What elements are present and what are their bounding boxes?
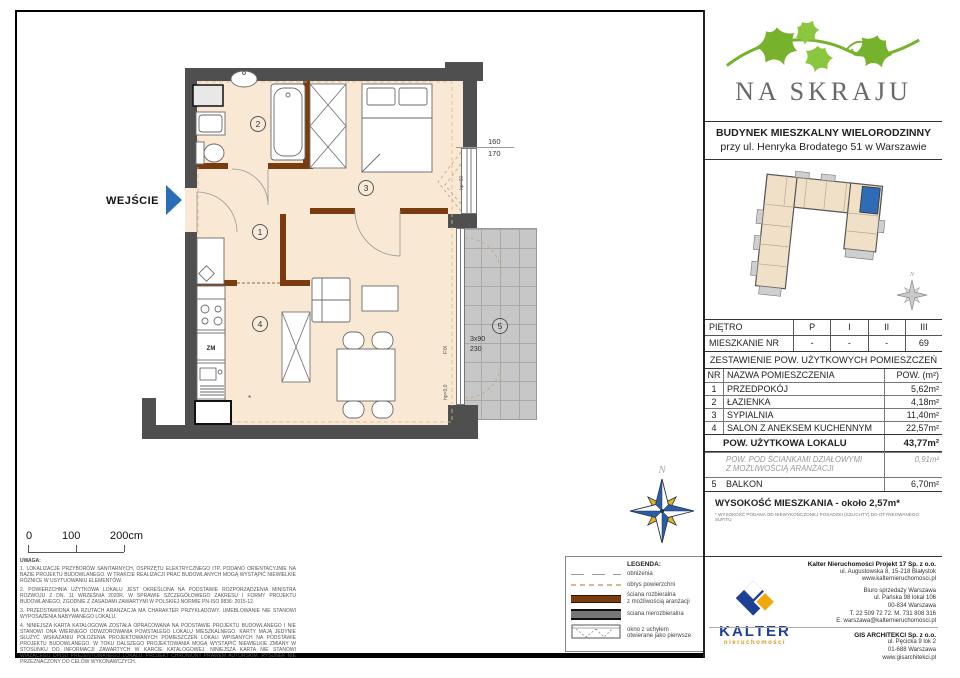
col-area: POW. (m²): [884, 369, 942, 382]
fix-window-label: FIX: [443, 345, 449, 354]
sales-office-title: Biuro sprzedaży Warszawa: [801, 588, 936, 596]
floor-row: PIĘTRO P I II III: [705, 320, 942, 335]
area-table-header: NR NAZWA POMIESZCZENIA POW. (m²): [705, 369, 942, 382]
hp-window-label: hp=60: [459, 176, 465, 190]
balcony-row: 5 BALKON 6,70m²: [705, 478, 942, 492]
scale-line: [28, 552, 124, 553]
col-nr: NR: [705, 369, 723, 382]
unit-cell: -: [830, 336, 867, 351]
architect-website[interactable]: www.gisarchitekci.pl: [801, 655, 936, 663]
legend-item: ściana rozbieralna z możliwością aranżac…: [571, 592, 702, 605]
demountable-wall-symbol: [571, 595, 621, 603]
area-table: NR NAZWA POMIESZCZENIA POW. (m²) 1 PRZED…: [705, 369, 942, 435]
note-item: 1. LOKALIZACJE PRZYBORÓW SANITARNYCH, OS…: [20, 566, 296, 584]
floor-row-label: PIĘTRO: [705, 320, 793, 335]
architect-city: 01-688 Warszawa: [801, 647, 936, 655]
floor-cell: I: [830, 320, 867, 335]
unit-cell: -: [868, 336, 905, 351]
kalter-diamond-icon: [732, 578, 778, 622]
toilet: [196, 142, 224, 164]
balcony-dim-2: 230: [470, 346, 482, 353]
room-area: 22,57m²: [884, 422, 942, 434]
area-table-title: ZESTAWIENIE POW. UŻYTKOWYCH POMIESZCZEŃ: [705, 352, 942, 369]
room-area: 11,40m²: [884, 409, 942, 421]
dim-window-top: 160: [488, 137, 501, 146]
floor-plan: ZM 1 2 3 4 5 WEJŚCIE: [140, 52, 560, 452]
compass-north-label: N: [624, 464, 700, 476]
building-address: przy ul. Henryka Brodatego 51 w Warszawi…: [705, 140, 942, 154]
compass-rose: N: [624, 464, 700, 551]
furniture-layer: ZM: [140, 52, 560, 452]
floor-unit-table: PIĘTRO P I II III MIESZKANIE NR - - - 69: [705, 320, 942, 352]
hall-cabinet: [197, 238, 224, 284]
total-area-row: POW. UŻYTKOWA LOKALU 43,77m²: [705, 435, 942, 452]
total-area-label: POW. UŻYTKOWA LOKALU: [723, 435, 884, 452]
note-item: 2. POWIERZCHNIA UŻYTKOWA LOKALU JEST OKR…: [20, 587, 296, 605]
legend-item: okno z uchyłem otwierane jako pierwsze: [571, 624, 702, 642]
note-item: 4. NINIEJSZA KARTA KATALOGOWA ZOSTAŁA OP…: [20, 623, 296, 665]
bathroom-sink: [231, 71, 257, 87]
dishwasher-label: ZM: [207, 346, 216, 352]
balcony-area: 6,70m²: [884, 478, 942, 491]
project-name: NA SKRAJU: [705, 77, 942, 107]
companies-footer: KALTER nieruchomości Kalter Nieruchomośc…: [705, 556, 942, 658]
scale-200: 200cm: [110, 530, 143, 542]
kitchen-counter: [197, 286, 225, 402]
legend-label: obrys powierzchni: [627, 582, 675, 589]
room-nr: 3: [705, 409, 723, 421]
room-number-hall: 1: [252, 224, 268, 240]
room-nr: 2: [705, 396, 723, 408]
room-number-salon: 4: [252, 316, 268, 332]
legend-item: ściana nierozbieralna: [571, 609, 702, 620]
height-footnote: * WYSOKOŚĆ PODANA OD NIEWYKOŃCZONEJ POSA…: [715, 512, 934, 522]
room-area: 5,62m²: [884, 383, 942, 395]
area-row: 1 PRZEDPOKÓJ 5,62m²: [705, 382, 942, 395]
room-number-bath: 2: [250, 116, 266, 132]
room-nr: 1: [705, 383, 723, 395]
legend-label: obniżenia: [627, 571, 653, 578]
partition-area-label: POW. POD ŚCIANKAMI DZIAŁOWYMI Z MOŻLIWOŚ…: [723, 453, 884, 477]
footer-divider: [709, 627, 938, 628]
building-site-plan: [719, 166, 919, 308]
unit-row: MIESZKANIE NR - - - 69: [705, 335, 942, 351]
unit-cell: -: [793, 336, 830, 351]
architect-street: ul. Pęcicka 9 lok 2: [801, 639, 936, 647]
area-row: 4 SALON Z ANEKSEM KUCHENNYM 22,57m²: [705, 421, 942, 434]
dim-leader-line: [456, 147, 514, 148]
room-area: 4,18m²: [884, 396, 942, 408]
apartment-height: WYSOKOŚĆ MIESZKANIA - około 2,57m*: [715, 498, 934, 509]
sales-office-street: ul. Pańska 98 lokal 106: [801, 595, 936, 603]
room-name: ŁAZIENKA: [723, 396, 884, 408]
sales-office-city: 00-834 Warszawa: [801, 603, 936, 611]
developer-address: ul. Augustowska 8, 15-218 Białystok: [801, 569, 936, 577]
developer-website[interactable]: www.kalternieruchomosci.pl: [801, 576, 936, 584]
total-area-value: 43,77m²: [884, 435, 942, 452]
tilt-window-symbol: [571, 624, 621, 640]
brand-logo-box: NA SKRAJU: [705, 10, 942, 122]
building-type: BUDYNEK MIESZKALNY WIELORODZINNY: [705, 126, 942, 140]
scale-bar: 0 100 200cm: [26, 530, 166, 558]
scale-tick: [124, 545, 125, 552]
legend-title: LEGENDA:: [627, 561, 702, 568]
dim-window-bottom: 170: [488, 149, 501, 158]
highlighted-unit: [860, 186, 881, 214]
info-panel: NA SKRAJU BUDYNEK MIESZKALNY WIELORODZIN…: [703, 10, 942, 658]
scale-100: 100: [62, 530, 80, 542]
partition-area-mark: *: [248, 394, 251, 403]
area-outline-symbol: [571, 584, 621, 586]
wardrobe-bedroom: [310, 84, 346, 168]
scale-tick: [76, 545, 77, 552]
notes-block: UWAGA: 1. LOKALIZACJE PRZYBORÓW SANITARN…: [20, 558, 296, 668]
coffee-table: [362, 286, 398, 311]
building-locator-box: N: [705, 160, 942, 320]
room-nr: 4: [705, 422, 723, 434]
room-number-balcony: 5: [492, 318, 508, 334]
architect-name: GIS ARCHITEKCI Sp. z o.o.: [801, 632, 936, 640]
mini-compass-star-icon: [895, 278, 929, 312]
legend-item: obniżenia: [571, 571, 702, 578]
wardrobe-salon: [282, 312, 310, 382]
room-name: SALON Z ANEKSEM KUCHENNYM: [723, 422, 884, 434]
room-number-bedroom: 3: [358, 180, 374, 196]
hp-floor-label: hp=0,0: [443, 385, 449, 400]
floor-cell: II: [868, 320, 905, 335]
dining-table-set: [337, 332, 395, 418]
legend-label: ściana rozbieralna z możliwością aranżac…: [627, 592, 690, 605]
legend-label: ściana nierozbieralna: [627, 611, 684, 618]
room-name: PRZEDPOKÓJ: [723, 383, 884, 395]
catalog-card-page: ZM 1 2 3 4 5 WEJŚCIE: [0, 0, 960, 678]
kalter-subtitle: nieruchomości: [724, 640, 786, 646]
legend-label: okno z uchyłem otwierane jako pierwsze: [627, 627, 691, 640]
sofa: [312, 278, 350, 322]
shaft-box-top: [193, 85, 223, 106]
floor-cell: P: [793, 320, 830, 335]
sales-office-phone: T. 22 509 72 72. M. 731 808 316: [801, 611, 936, 619]
balcony-name: BALKON: [723, 478, 884, 491]
area-row: 3 SYPIALNIA 11,40m²: [705, 408, 942, 421]
compass-star-icon: [627, 476, 697, 546]
structural-wall-symbol: [571, 609, 621, 620]
bathtub: [271, 84, 305, 160]
bed: [362, 84, 432, 172]
col-name: NAZWA POMIESZCZENIA: [723, 369, 884, 382]
partition-area-row: POW. POD ŚCIANKAMI DZIAŁOWYMI Z MOŻLIWOŚ…: [705, 452, 942, 478]
company-contacts: Kalter Nieruchomości Projekt 17 Sp. z o.…: [801, 561, 936, 662]
architect-block: GIS ARCHITEKCI Sp. z o.o. ul. Pęcicka 9 …: [801, 632, 936, 662]
lowered-ceiling-symbol: [571, 574, 621, 575]
partition-area-value: 0,91m²: [884, 453, 942, 477]
balcony-dim-1: 3x90: [470, 336, 485, 343]
unit-number-cell: 69: [905, 336, 942, 351]
height-note-box: WYSOKOŚĆ MIESZKANIA - około 2,57m* * WYS…: [705, 492, 942, 548]
sales-office-email[interactable]: E. warszawa@kalternieruchomosci.pl: [801, 618, 936, 626]
scale-tick: [28, 545, 29, 552]
legend-box: LEGENDA: obniżenia obrys powierzchni ści…: [565, 556, 707, 652]
notes-title: UWAGA:: [20, 558, 296, 564]
entrance-arrow-icon: [166, 185, 182, 215]
building-header-box: BUDYNEK MIESZKALNY WIELORODZINNY przy ul…: [705, 122, 942, 160]
ivy-vine-icon: [721, 14, 927, 76]
room-name: SYPIALNIA: [723, 409, 884, 421]
unit-row-label: MIESZKANIE NR: [705, 336, 793, 351]
legend-item: obrys powierzchni: [571, 582, 702, 589]
balcony-nr: 5: [705, 478, 723, 491]
kalter-wordmark: KALTER: [719, 623, 791, 640]
developer-name: Kalter Nieruchomości Projekt 17 Sp. z o.…: [801, 561, 936, 569]
area-row: 2 ŁAZIENKA 4,18m²: [705, 395, 942, 408]
note-item: 3. PRZEDSTAWIONA NA RZUTACH ARANŻACJA MA…: [20, 608, 296, 620]
floor-cell: III: [905, 320, 942, 335]
kalter-logo: KALTER nieruchomości: [709, 561, 801, 662]
shaft-box-bottom: [195, 401, 231, 424]
mini-compass: N: [892, 272, 932, 317]
entrance-label: WEJŚCIE: [106, 195, 159, 207]
washing-machine: [196, 112, 225, 135]
scale-0: 0: [26, 530, 32, 542]
